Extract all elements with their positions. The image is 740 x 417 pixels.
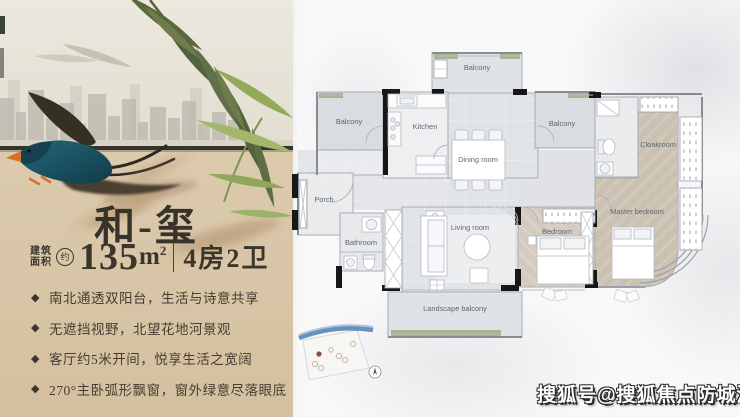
area-unit: m2 xyxy=(139,243,166,271)
label-landscape-balcony: Landscape balcony xyxy=(423,304,487,313)
floor-plan: Balcony Balcony Kitchen Dining room Balc… xyxy=(285,40,725,380)
diamond-bullet-icon: ◆ xyxy=(31,321,40,334)
label-dining-room: Dining room xyxy=(458,155,498,164)
label-bedroom: Bedroom xyxy=(542,227,572,236)
left-art-panel: 和-玺 建筑 面积 约 135 m2 4房2卫 ◆南北通透双阳台，生活与诗意共享… xyxy=(0,0,293,417)
approx-circle: 约 xyxy=(56,248,74,266)
bamboo-stalk-fragment xyxy=(0,48,4,78)
living-furniture xyxy=(421,207,518,290)
site-marker xyxy=(316,351,321,356)
site-mini-map xyxy=(299,325,381,380)
label-bathroom: Bathroom xyxy=(345,238,377,247)
area-value: 135 xyxy=(79,240,139,274)
feature-item: ◆客厅约5米开间，悦享生活之宽阔 xyxy=(31,348,287,368)
label-kitchen: Kitchen xyxy=(413,122,438,131)
label-master-bedroom: Master bedroom xyxy=(610,207,664,216)
diamond-bullet-icon: ◆ xyxy=(31,382,40,395)
feature-item: ◆无遮挡视野，北望花地河景观 xyxy=(31,318,287,338)
label-porch: Porch xyxy=(314,195,333,204)
diamond-bullet-icon: ◆ xyxy=(31,291,40,304)
area-prefix: 建筑 面积 xyxy=(30,246,52,268)
label-balcony-right: Balcony xyxy=(549,119,576,128)
decor-cushions xyxy=(541,287,639,303)
bamboo-stalk-fragment xyxy=(0,16,5,34)
feature-list: ◆南北通透双阳台，生活与诗意共享 ◆无遮挡视野，北望花地河景观 ◆客厅约5米开间… xyxy=(31,287,287,409)
sohu-watermark: 搜狐号@搜狐焦点防城港站 xyxy=(537,380,740,407)
label-balcony-top: Balcony xyxy=(464,63,491,72)
diamond-bullet-icon: ◆ xyxy=(31,352,40,365)
compass-icon xyxy=(369,366,381,378)
label-cloakroom: Cloakroom xyxy=(640,140,676,149)
poster: 和-玺 建筑 面积 约 135 m2 4房2卫 ◆南北通透双阳台，生活与诗意共享… xyxy=(0,0,740,417)
label-living-room: Living room xyxy=(451,223,489,232)
area-spec-row: 建筑 面积 约 135 m2 4房2卫 xyxy=(30,238,269,275)
room-count: 4房2卫 xyxy=(183,238,269,275)
label-balcony-left: Balcony xyxy=(336,117,363,126)
feature-item: ◆270°主卧弧形飘窗，窗外绿意尽落眼底 xyxy=(31,379,287,399)
divider-bar xyxy=(173,242,174,272)
feature-item: ◆南北通透双阳台，生活与诗意共享 xyxy=(31,287,287,307)
